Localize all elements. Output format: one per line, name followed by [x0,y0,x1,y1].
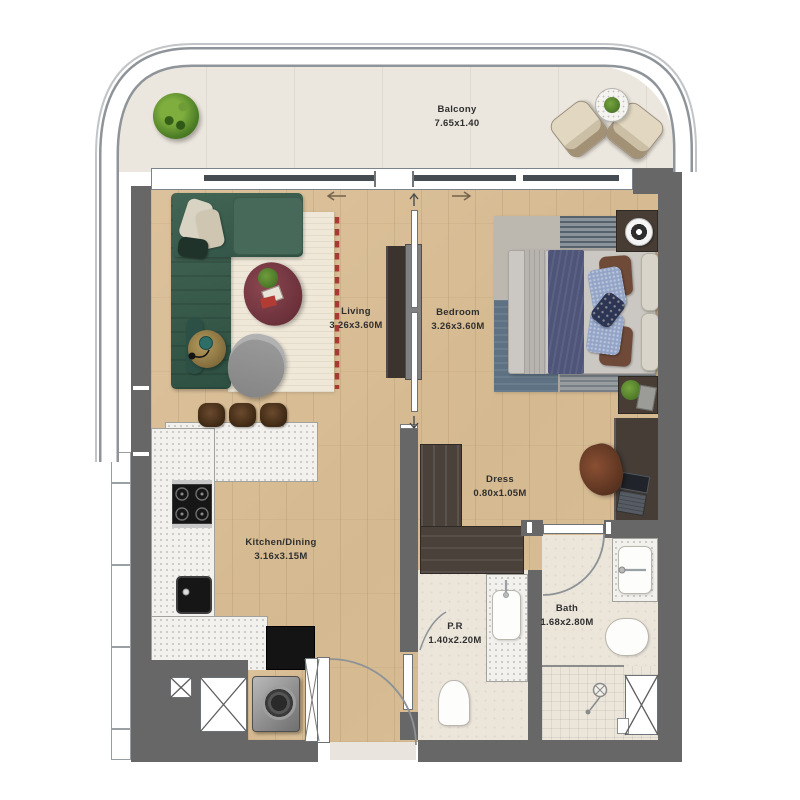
wall-bath-jamb-tick [527,522,532,533]
bed-navy-throw [548,250,584,374]
headboard-cushion-1 [641,253,659,311]
table-lamp [625,218,653,246]
window-wall [151,168,633,190]
cooktop-trim-bottom [172,524,212,528]
room-name: P.R [395,620,515,634]
balcony-potted-plant [153,93,199,139]
window-glazing-3 [523,175,619,181]
wall-pr-left-cap [400,424,418,429]
pr-door-leaf [403,654,413,710]
wall-pr-left-lower [400,712,418,740]
wardrobe-horizontal [420,526,524,574]
wall-pr-left-upper [400,424,418,652]
room-dims: 0.80x1.05M [440,487,560,501]
kitchen-sink [176,576,212,614]
bath-sink [618,546,652,594]
room-label-dress: Dress 0.80x1.05M [440,473,560,501]
window-sliding-door-gap [374,171,414,187]
bath-door-leaf [543,524,604,534]
window-glazing-1 [204,175,374,181]
wall-left [131,186,151,762]
room-name: Dress [440,473,560,487]
laptop-keyboard [616,490,647,517]
wall-bath-top-right [604,520,658,538]
sectional-sofa-seat [233,197,303,255]
room-dims: 3.16x3.15M [221,550,341,564]
entrance-door-leaf [317,657,330,743]
service-shaft-small [170,677,192,698]
coffee-table-plant [258,268,278,288]
room-dims: 1.68x2.80M [507,616,627,630]
room-label-bath: Bath 1.68x2.80M [507,602,627,630]
room-label-bedroom: Bedroom 3.26x3.60M [398,306,518,334]
left-exterior-window-column [111,452,131,760]
wall-bottom-left [131,740,318,762]
bar-stool-2 [229,403,256,427]
cooktop [172,484,212,524]
sliding-partition-track-upper [411,210,418,308]
wall-bath-jamb-left [521,520,543,536]
service-shaft-large [200,677,247,732]
room-name: Balcony [397,103,517,117]
entrance-threshold [330,742,416,760]
washer-drum [262,686,296,720]
wall-left-window-tick-1 [133,386,149,390]
window-glazing-2 [414,175,516,181]
room-label-kitchen: Kitchen/Dining 3.16x3.15M [221,536,341,564]
room-dims: 3.26x3.60M [398,320,518,334]
headboard-cushion-2 [641,313,659,371]
room-name: Kitchen/Dining [221,536,341,550]
bar-stool-3 [260,403,287,427]
wall-left-window-tick-2 [133,452,149,456]
room-label-pr: P.R 1.40x2.20M [395,620,515,648]
wall-pr-bath-divider [528,570,542,740]
room-name: Bedroom [398,306,518,320]
shaft-notch [617,718,629,734]
sofa-pillow-dark [177,236,209,260]
room-dims: 1.40x2.20M [395,634,515,648]
bed-folded-blanket [524,250,546,374]
pr-toilet [438,680,470,726]
bar-stool-1 [198,403,225,427]
balcony-table-plant [604,97,620,113]
service-shaft-bath [625,675,658,735]
wall-right [658,168,682,762]
wall-bath-top-tick [606,522,611,534]
floor-plan: Balcony 7.65x1.40 Living 3.26x3.60M Bedr… [0,0,800,800]
wall-bottom-right [418,740,682,762]
room-label-balcony: Balcony 7.65x1.40 [397,103,517,131]
room-name: Bath [507,602,627,616]
wall-top-right-block [633,168,658,194]
room-dims: 7.65x1.40 [397,117,517,131]
side-table-cup [199,336,213,350]
